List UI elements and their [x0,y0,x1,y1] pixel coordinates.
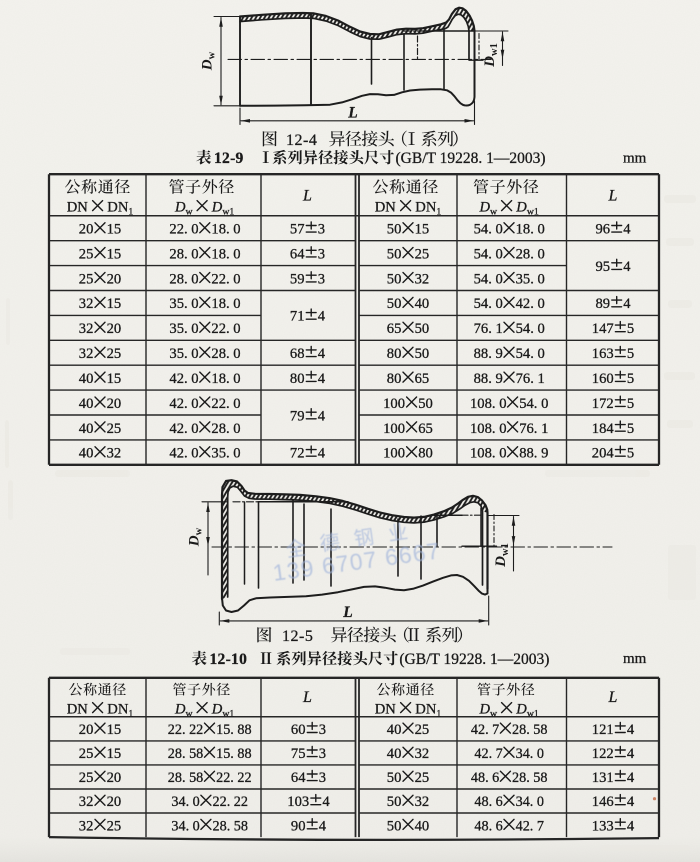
svg-text:42. 7: 42. 7 [474,746,502,762]
svg-text:18. 0: 18. 0 [516,222,545,238]
svg-text:32: 32 [415,794,430,810]
svg-text:L: L [608,689,618,706]
svg-text:25: 25 [107,346,122,362]
svg-text:40: 40 [387,722,402,738]
svg-text:40: 40 [79,446,94,462]
svg-text:32: 32 [415,271,430,287]
svg-text:4: 4 [318,309,326,325]
svg-text:25: 25 [79,746,94,762]
svg-text:204: 204 [592,446,615,462]
svg-text:64: 64 [290,246,305,262]
svg-text:15. 88: 15. 88 [216,746,251,762]
svg-text:68: 68 [290,346,305,362]
svg-text:122: 122 [592,746,614,762]
svg-text:100: 100 [383,421,405,437]
svg-text:22. 22: 22. 22 [168,722,203,738]
svg-text:25: 25 [79,770,94,786]
svg-text:48. 6: 48. 6 [471,770,499,786]
svg-text:54. 0: 54. 0 [516,321,545,337]
svg-text:4: 4 [623,222,631,238]
svg-text:DN: DN [375,200,397,216]
svg-text:80: 80 [387,371,402,387]
svg-text:22. 0: 22. 0 [211,396,240,412]
svg-text:50: 50 [387,818,402,834]
svg-text:42. 7: 42. 7 [471,722,499,738]
svg-text:3: 3 [319,722,326,738]
svg-text:108. 0: 108. 0 [470,396,506,412]
svg-text:18. 0: 18. 0 [211,371,240,387]
svg-text:mm: mm [623,151,647,167]
svg-text:DN: DN [375,702,397,718]
svg-text:172: 172 [592,396,614,412]
svg-text:28. 58: 28. 58 [213,818,248,834]
svg-text:5: 5 [627,371,634,387]
svg-text:15: 15 [107,371,122,387]
svg-text:50: 50 [387,222,402,238]
svg-text:76. 1: 76. 1 [516,371,545,387]
svg-text:5: 5 [627,446,634,462]
svg-text:22. 0: 22. 0 [169,222,198,238]
svg-text:4: 4 [627,746,635,762]
svg-text:54. 0: 54. 0 [474,271,503,287]
svg-text:34. 0: 34. 0 [516,794,544,810]
svg-text:3: 3 [318,246,325,262]
svg-text:28. 58: 28. 58 [512,722,547,738]
svg-text:25: 25 [415,770,430,786]
svg-text:15: 15 [107,246,122,262]
svg-text:4: 4 [318,371,326,387]
svg-text:64: 64 [291,770,306,786]
svg-text:DN: DN [67,200,89,216]
svg-text:32: 32 [107,446,122,462]
svg-text:75: 75 [291,746,306,762]
svg-text:57: 57 [290,222,305,238]
svg-text:40: 40 [79,371,94,387]
svg-text:12-4: 12-4 [286,132,317,149]
svg-text:L: L [342,604,352,621]
svg-text:76. 1: 76. 1 [519,421,548,437]
svg-text:42. 0: 42. 0 [169,421,198,437]
svg-text:20: 20 [107,794,122,810]
svg-text:4: 4 [627,818,635,834]
svg-text:65: 65 [387,321,402,337]
svg-text:4: 4 [318,408,326,424]
svg-text:80: 80 [418,446,433,462]
svg-text:42. 0: 42. 0 [169,446,198,462]
svg-text:42. 7: 42. 7 [516,818,544,834]
svg-text:18. 0: 18. 0 [211,222,240,238]
svg-text:25: 25 [79,271,94,287]
svg-text:50: 50 [387,770,402,786]
svg-text:76. 1: 76. 1 [474,321,503,337]
svg-text:100: 100 [383,396,405,412]
svg-text:28. 0: 28. 0 [211,421,240,437]
svg-text:4: 4 [623,296,631,312]
svg-text:15: 15 [415,222,430,238]
svg-text:32: 32 [79,794,94,810]
svg-text:28. 0: 28. 0 [516,246,545,262]
svg-text:95: 95 [596,259,611,275]
svg-text:40: 40 [79,396,94,412]
svg-text:35. 0: 35. 0 [169,321,198,337]
svg-text:160: 160 [592,371,614,387]
svg-text:100: 100 [383,446,405,462]
svg-text:88. 9: 88. 9 [519,446,548,462]
svg-text:20: 20 [79,722,94,738]
svg-text:79: 79 [290,408,305,424]
svg-text:35. 0: 35. 0 [169,346,198,362]
svg-text:20: 20 [107,271,122,287]
svg-text:88. 9: 88. 9 [474,371,503,387]
svg-text:32: 32 [79,321,94,337]
svg-text:184: 184 [592,421,615,437]
svg-text:3: 3 [319,770,326,786]
svg-text:48. 6: 48. 6 [474,794,502,810]
svg-text:80: 80 [290,371,305,387]
svg-text:25: 25 [107,818,122,834]
svg-text:90: 90 [291,818,306,834]
svg-text:54. 0: 54. 0 [519,396,548,412]
svg-text:15: 15 [107,722,122,738]
svg-text:50: 50 [387,271,402,287]
svg-text:40: 40 [415,818,430,834]
svg-text:18. 0: 18. 0 [211,246,240,262]
svg-text:4: 4 [319,818,327,834]
svg-text:71: 71 [290,309,305,325]
svg-text:22. 22: 22. 22 [213,794,248,810]
svg-text:146: 146 [592,794,614,810]
svg-text:20: 20 [79,222,94,238]
svg-text:4: 4 [623,259,631,275]
svg-text:20: 20 [107,321,122,337]
svg-text:88. 9: 88. 9 [474,346,503,362]
svg-text:54. 0: 54. 0 [474,296,503,312]
svg-text:42. 0: 42. 0 [169,396,198,412]
svg-text:80: 80 [387,346,402,362]
svg-text:48. 6: 48. 6 [474,818,502,834]
svg-text:15: 15 [107,746,122,762]
svg-text:50: 50 [415,321,430,337]
svg-text:89: 89 [596,296,611,312]
svg-text:22. 22: 22. 22 [216,770,251,786]
svg-text:35. 0: 35. 0 [211,446,240,462]
svg-text:5: 5 [627,396,634,412]
svg-text:60: 60 [291,722,306,738]
svg-text:5: 5 [627,421,634,437]
svg-text:34. 0: 34. 0 [171,794,199,810]
svg-text:54. 0: 54. 0 [474,222,503,238]
svg-text:32: 32 [79,296,94,312]
svg-text:L: L [302,689,312,706]
svg-text:12-10: 12-10 [210,651,248,668]
svg-text:59: 59 [290,271,305,287]
svg-text:32: 32 [415,746,430,762]
svg-text:35. 0: 35. 0 [169,296,198,312]
svg-text:5: 5 [627,346,634,362]
svg-text:40: 40 [387,746,402,762]
svg-text:15: 15 [107,296,122,312]
svg-text:15. 88: 15. 88 [216,722,251,738]
svg-text:4: 4 [627,770,635,786]
svg-text:4: 4 [322,794,330,810]
svg-text:133: 133 [592,818,614,834]
svg-text:mm: mm [623,651,647,667]
svg-text:(GB/T 19228. 1—2003): (GB/T 19228. 1—2003) [396,150,546,167]
svg-text:12-5: 12-5 [282,628,313,645]
svg-text:25: 25 [415,722,430,738]
svg-text:4: 4 [318,346,326,362]
svg-text:3: 3 [319,746,326,762]
svg-text:28. 58: 28. 58 [512,770,547,786]
svg-text:28. 0: 28. 0 [169,271,198,287]
svg-text:34. 0: 34. 0 [171,818,199,834]
svg-text:35. 0: 35. 0 [516,271,545,287]
svg-text:42. 0: 42. 0 [169,371,198,387]
svg-text:DN: DN [67,702,89,718]
svg-text:50: 50 [387,296,402,312]
svg-text:147: 147 [592,321,614,337]
svg-text:50: 50 [387,794,402,810]
svg-text:34. 0: 34. 0 [516,746,544,762]
svg-text:40: 40 [79,421,94,437]
svg-text:4: 4 [627,722,635,738]
svg-text:40: 40 [415,296,430,312]
svg-text:15: 15 [107,222,122,238]
svg-text:72: 72 [290,446,305,462]
svg-text:121: 121 [592,722,614,738]
svg-text:20: 20 [107,396,122,412]
svg-text:54. 0: 54. 0 [474,246,503,262]
svg-text:96: 96 [596,222,611,238]
svg-text:54. 0: 54. 0 [516,346,545,362]
svg-text:32: 32 [79,346,94,362]
svg-text:4: 4 [318,446,326,462]
svg-text:3: 3 [318,222,325,238]
svg-text:108. 0: 108. 0 [470,446,506,462]
svg-text:163: 163 [592,346,614,362]
svg-text:L: L [608,188,618,205]
svg-text:(GB/T 19228. 1—2003): (GB/T 19228. 1—2003) [399,651,549,668]
svg-text:28. 58: 28. 58 [168,746,203,762]
svg-text:22. 0: 22. 0 [211,321,240,337]
svg-text:32: 32 [79,818,94,834]
svg-text:28. 0: 28. 0 [169,246,198,262]
svg-text:65: 65 [418,421,433,437]
svg-text:50: 50 [418,396,433,412]
svg-text:4: 4 [627,794,635,810]
svg-text:L: L [302,188,312,205]
svg-text:28. 58: 28. 58 [168,770,203,786]
svg-text:25: 25 [107,421,122,437]
svg-text:25: 25 [415,246,430,262]
svg-text:L: L [347,105,357,122]
svg-text:50: 50 [387,246,402,262]
svg-text:131: 131 [592,770,614,786]
svg-text:3: 3 [318,271,325,287]
svg-text:103: 103 [287,794,309,810]
svg-text:28. 0: 28. 0 [211,346,240,362]
svg-text:42. 0: 42. 0 [516,296,545,312]
svg-text:22. 0: 22. 0 [211,271,240,287]
svg-text:50: 50 [415,346,430,362]
svg-text:18. 0: 18. 0 [211,296,240,312]
svg-text:25: 25 [79,246,94,262]
svg-text:108. 0: 108. 0 [470,421,506,437]
svg-text:5: 5 [627,321,634,337]
svg-text:65: 65 [415,371,430,387]
svg-text:12-9: 12-9 [214,150,244,167]
svg-text:20: 20 [107,770,122,786]
